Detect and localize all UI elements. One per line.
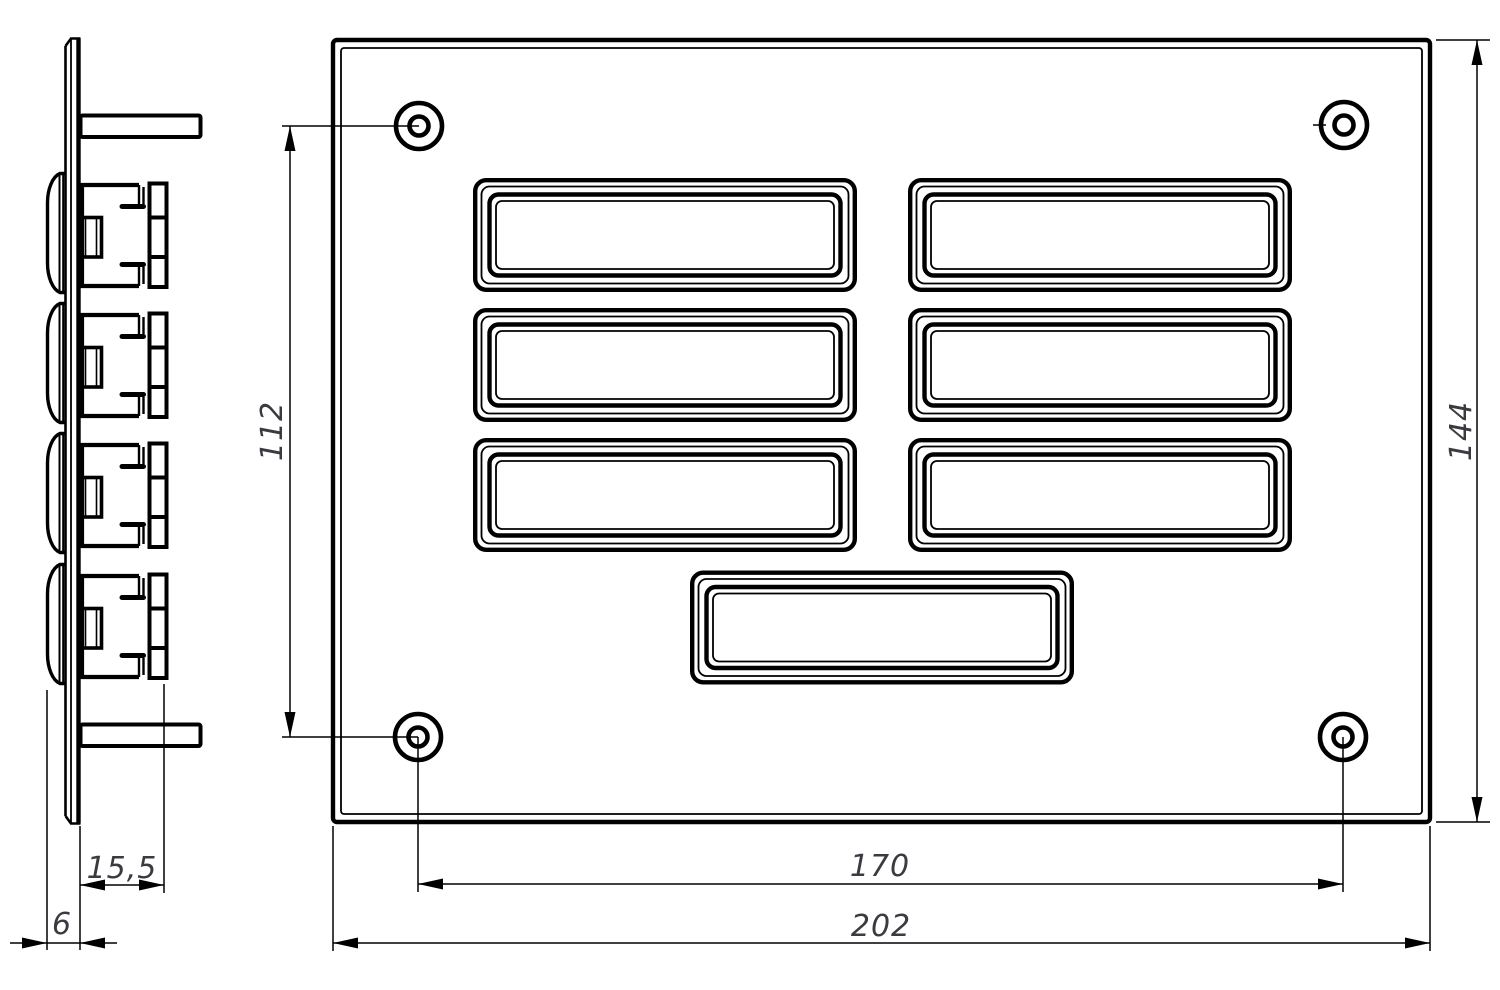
dim-overall-width-label: 202 xyxy=(851,909,911,944)
button-window-right-2 xyxy=(910,310,1290,420)
mounting-hole-top-right xyxy=(1313,102,1367,148)
button-window-left-3 xyxy=(475,440,855,550)
drawing-canvas: 112 144 170 202 xyxy=(0,0,1500,990)
dim-horizontal-hole-spacing-label: 170 xyxy=(850,849,910,884)
side-plate xyxy=(66,39,81,824)
side-stud-top xyxy=(81,116,201,138)
dim-vertical-hole-spacing: 112 xyxy=(255,126,419,737)
button-window-right-1 xyxy=(910,180,1290,290)
side-view xyxy=(48,39,201,824)
front-plate-outline xyxy=(333,40,1430,822)
button-window-right-3 xyxy=(910,440,1290,550)
dim-overall-height: 144 xyxy=(1436,40,1490,822)
button-window-bottom-center xyxy=(692,573,1072,683)
dim-mount-depth-label: 15,5 xyxy=(87,851,158,886)
dim-plate-thickness-label: 6 xyxy=(52,907,72,942)
panel-technical-drawing: 112 144 170 202 xyxy=(0,0,1500,990)
dim-overall-width: 202 xyxy=(333,826,1430,951)
side-stud-bottom xyxy=(81,725,201,747)
dim-vertical-hole-spacing-label: 112 xyxy=(255,401,290,461)
front-plate-inner-line xyxy=(341,48,1422,814)
button-window-left-2 xyxy=(475,310,855,420)
dim-plate-thickness: 6 xyxy=(10,690,117,950)
dim-overall-height-label: 144 xyxy=(1444,401,1479,461)
button-window-left-1 xyxy=(475,180,855,290)
front-view xyxy=(333,40,1430,822)
